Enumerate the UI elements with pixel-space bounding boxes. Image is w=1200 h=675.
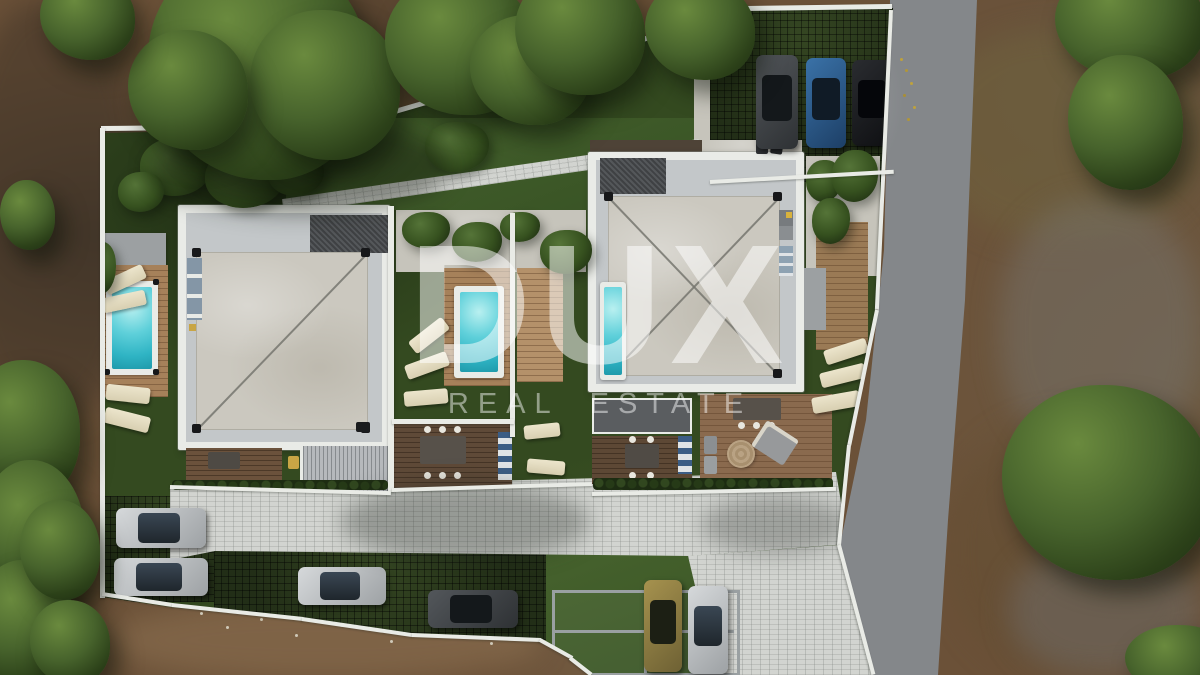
lap-pool-water	[604, 287, 622, 375]
outdoor-kitchen-panels	[678, 436, 692, 474]
interior-wall	[510, 213, 515, 437]
gravel-specks	[200, 612, 203, 615]
pool-center-water	[460, 292, 498, 372]
villa-left-gravel-roof	[310, 215, 390, 253]
car-glass	[694, 606, 722, 646]
villa-right-top-deck	[590, 140, 702, 152]
parked-car-silver	[116, 508, 206, 548]
pool-corner	[153, 369, 159, 375]
outdoor-table	[208, 452, 240, 469]
sun-lounger	[103, 407, 152, 434]
deck-strip-center	[517, 268, 563, 382]
interior-wall	[388, 206, 394, 492]
skylight-panels	[779, 246, 793, 276]
parked-car-silver	[298, 567, 386, 605]
skylight-panels	[187, 258, 202, 320]
car-glass	[138, 513, 180, 543]
tree-canopy	[0, 180, 55, 250]
sun-lounger	[526, 458, 565, 475]
outdoor-table	[625, 444, 659, 468]
roof-drain	[192, 424, 201, 433]
garden-item	[288, 456, 299, 469]
car-glass	[320, 572, 360, 600]
pool-corner	[153, 279, 159, 285]
dining-table	[420, 436, 466, 464]
villa-right-gravel-roof	[600, 158, 666, 194]
dining-table	[733, 398, 781, 420]
interior-wall	[392, 419, 514, 424]
sun-lounger	[105, 384, 150, 405]
garden-wall-structure	[804, 268, 826, 330]
aerial-property-render: DUX REAL ESTATE	[0, 0, 1200, 675]
tree-shadow	[700, 495, 850, 555]
fallen-leaves	[900, 58, 903, 61]
parked-car-blue	[806, 58, 846, 148]
deck-cabinet	[704, 436, 717, 454]
parked-car-silver	[114, 558, 208, 596]
car-glass	[812, 78, 840, 120]
roof-drain	[773, 369, 782, 378]
sun-lounger	[403, 388, 448, 407]
rooftop-fixture	[189, 324, 196, 331]
car-glass	[450, 595, 492, 623]
parked-car-dark-gray	[756, 55, 798, 149]
boundary-wall-left	[100, 128, 105, 598]
rooftop-fixture	[786, 212, 792, 218]
ac-unit	[356, 422, 370, 432]
parked-car-gold	[644, 580, 682, 672]
parked-car-silver	[688, 586, 728, 674]
outdoor-chairs	[629, 436, 636, 443]
car-glass	[650, 600, 676, 644]
roof-drain	[773, 192, 782, 201]
dining-chairs	[738, 422, 745, 429]
outdoor-kitchen-panels	[498, 432, 512, 480]
car-glass	[762, 75, 792, 121]
roof-drain	[192, 248, 201, 257]
parked-car-dark-gray	[428, 590, 518, 628]
deck-cabinet	[704, 456, 717, 474]
car-glass	[136, 563, 182, 591]
dining-chairs	[424, 426, 431, 433]
sun-lounger	[523, 422, 560, 440]
pergola-roof	[592, 398, 692, 434]
car-glass	[858, 80, 886, 118]
roof-drain	[604, 192, 613, 201]
roof-drain	[361, 248, 370, 257]
